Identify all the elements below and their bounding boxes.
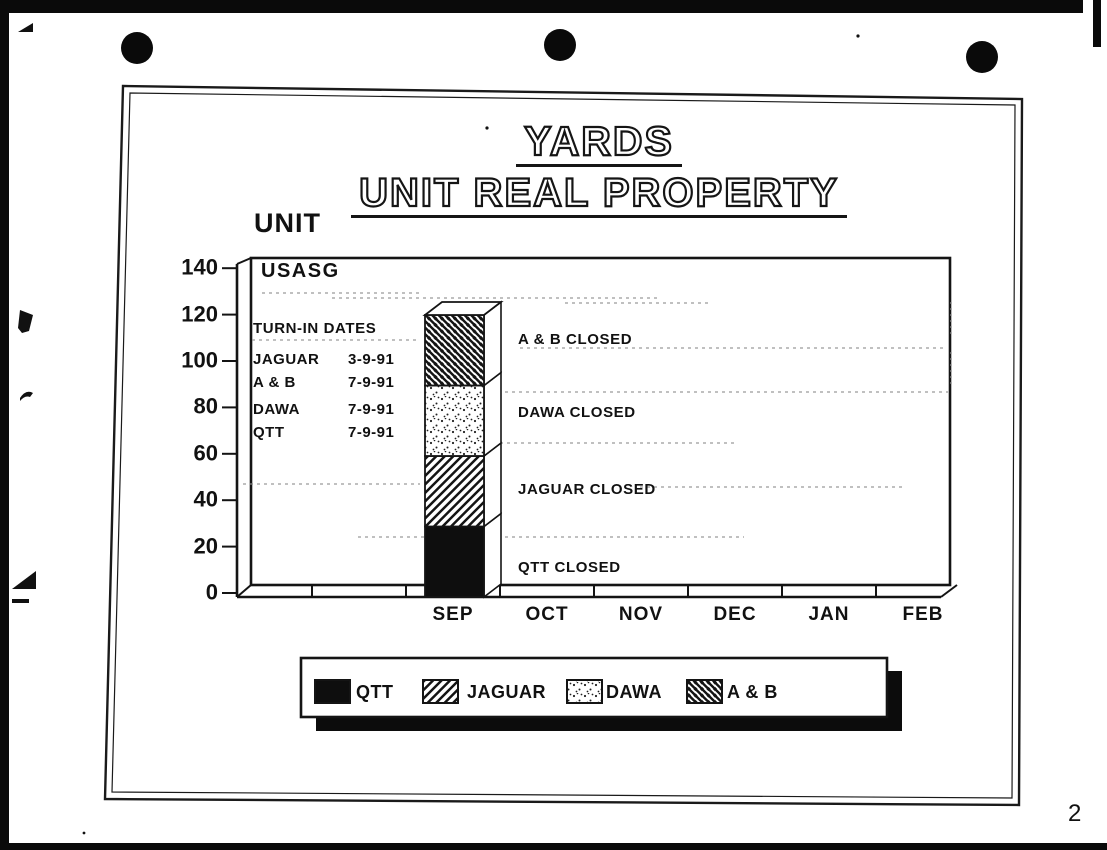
- slide-title: YARDS UNIT REAL PROPERTY: [92, 118, 1106, 218]
- closed-annotation: DAWA CLOSED: [518, 404, 636, 421]
- y-axis-tick-label: 80: [170, 394, 218, 420]
- turn-in-row-name: DAWA: [253, 401, 300, 418]
- legend-item-label: A & B: [727, 682, 778, 703]
- turn-in-row-date: 7-9-91: [348, 374, 394, 391]
- y-axis-tick-label: 60: [170, 440, 218, 466]
- scanned-slide-page: { "page": { "page_number": "2", "slide_t…: [0, 0, 1107, 850]
- x-axis-label: JAN: [784, 604, 874, 626]
- plot-box: [237, 258, 957, 597]
- turn-in-row-name: QTT: [253, 424, 285, 441]
- y-axis-tick-label: 140: [170, 255, 218, 281]
- y-axis-tick-label: 20: [170, 533, 218, 559]
- page-number: 2: [1068, 800, 1081, 828]
- legend-swatch-icon: [315, 680, 350, 703]
- title-line-2-text: UNIT REAL PROPERTY: [351, 173, 847, 218]
- x-axis-label: DEC: [690, 604, 780, 626]
- turn-in-row-date: 7-9-91: [348, 424, 394, 441]
- title-line-2: UNIT REAL PROPERTY: [92, 171, 1106, 218]
- binder-hole-icon: [121, 29, 998, 73]
- y-axis-tick-label: 100: [170, 347, 218, 373]
- x-axis-label: NOV: [596, 604, 686, 626]
- legend-swatch-icon: [423, 680, 458, 703]
- title-line-1: YARDS: [92, 118, 1106, 167]
- closed-annotation: JAGUAR CLOSED: [518, 481, 656, 498]
- y-axis-title: UNIT: [254, 208, 321, 239]
- legend-swatch-icon: [567, 680, 602, 703]
- legend-item-label: JAGUAR: [467, 682, 546, 703]
- x-axis-label: FEB: [878, 604, 968, 626]
- turn-in-row-name: JAGUAR: [253, 351, 319, 368]
- stacked-bar-sep: [425, 302, 501, 597]
- axis-ticks: [222, 268, 876, 597]
- y-axis-tick-label: 120: [170, 301, 218, 327]
- closed-annotation: A & B CLOSED: [518, 331, 632, 348]
- y-axis-tick-label: 0: [170, 579, 218, 605]
- y-axis-tick-label: 40: [170, 487, 218, 513]
- turn-in-row-date: 3-9-91: [348, 351, 394, 368]
- turn-in-dates-heading: TURN-IN DATES: [253, 320, 376, 337]
- x-axis-label: SEP: [408, 604, 498, 626]
- closed-annotation: QTT CLOSED: [518, 559, 621, 576]
- legend-item-label: DAWA: [606, 682, 662, 703]
- turn-in-row-date: 7-9-91: [348, 401, 394, 418]
- x-axis-label: OCT: [502, 604, 592, 626]
- legend-item-label: QTT: [356, 682, 394, 703]
- legend-swatch-icon: [687, 680, 722, 703]
- title-line-1-text: YARDS: [516, 121, 682, 167]
- turn-in-row-name: A & B: [253, 374, 296, 391]
- plot-corner-label: USASG: [261, 260, 340, 283]
